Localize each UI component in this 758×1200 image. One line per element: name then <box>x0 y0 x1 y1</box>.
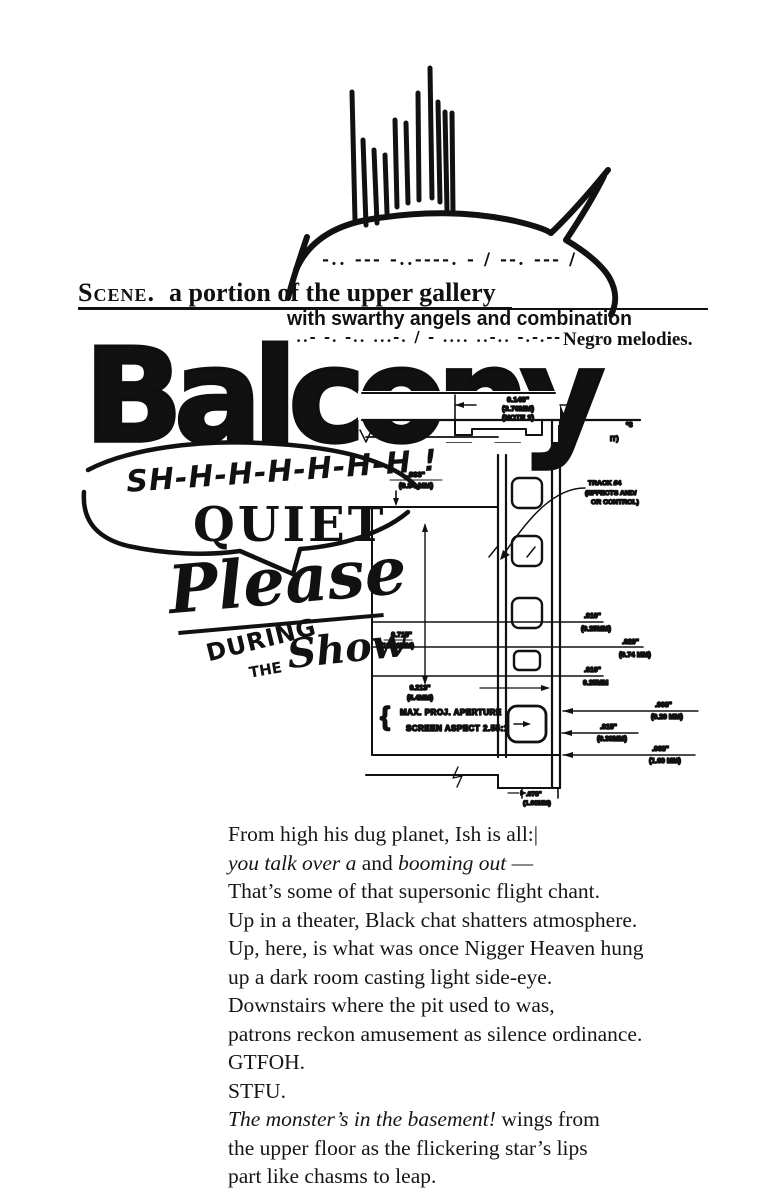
poem-text: Up in a theater, Black chat shatters atm… <box>228 908 637 932</box>
poem-block: From high his dug planet, Ish is all:| y… <box>228 820 708 1191</box>
dim-height-in: 0.715" <box>391 632 412 639</box>
poem-line: Up in a theater, Black chat shatters atm… <box>228 906 708 935</box>
poem-line: STFU. <box>228 1077 708 1106</box>
dim6-mm: (1.60 MM) <box>649 758 681 765</box>
track-label-2: (EFFECTS AND/ <box>585 490 637 497</box>
frame-dimension: 0.213" (5.4MM) <box>407 685 550 702</box>
poem-text: up a dark room casting light side-eye. <box>228 965 552 989</box>
dim2-in: .029" <box>622 639 639 646</box>
dim-bottom-mm: (1.98MM) <box>523 800 551 807</box>
poem-line: GTFOH. <box>228 1048 708 1077</box>
poem-text: The monster’s in the basement! <box>228 1107 496 1131</box>
poem-text: That’s some of that supersonic flight ch… <box>228 879 600 903</box>
right-dimensions: .010" (0.25MM) .029" (0.74 MM) .010" 0.2… <box>562 613 698 765</box>
dim-edge-mm: (0.84 MM) <box>399 481 434 490</box>
dim3-mm: 0.25MM <box>583 680 608 687</box>
aperture-label-1: MAX. PROJ. APERTURE <box>400 708 502 717</box>
dim5-mm: (0.38MM) <box>597 736 627 743</box>
track-label-3: OR CONTROL) <box>591 499 639 506</box>
dim6-in: .063" <box>652 746 669 753</box>
aperture-box <box>372 507 560 755</box>
edge-dimension: .033" (0.84 MM) <box>390 470 442 506</box>
poem-line: you talk over a and booming out — <box>228 849 708 878</box>
poem-line: That’s some of that supersonic flight ch… <box>228 877 708 906</box>
dim-frame-mm: (5.4MM) <box>407 695 433 702</box>
poem-line: The monster’s in the basement! wings fro… <box>228 1105 708 1134</box>
poem-text: From high his dug planet, Ish is all:| <box>228 822 538 846</box>
height-dimension: 0.715" (18.16MM) <box>380 523 428 685</box>
dim-frame-in: 0.213" <box>410 685 431 692</box>
poem-text: Downstairs where the pit used to was, <box>228 993 555 1017</box>
dim1-in: .010" <box>584 613 601 620</box>
poem-text: the upper floor as the flickering star’s… <box>228 1136 588 1160</box>
break-symbol-top <box>360 429 377 442</box>
dim-bottom-in: .078" <box>526 791 542 798</box>
poem-text: STFU. <box>228 1079 286 1103</box>
poem-text: GTFOH. <box>228 1050 305 1074</box>
dim5-in: .015" <box>600 724 617 731</box>
poem-line: patrons reckon amusement as silence ordi… <box>228 1020 708 1049</box>
label-fragment-right: IT) <box>610 436 619 443</box>
label-fragment-star: *3 <box>626 422 633 429</box>
film-schematic: 0.148" (3.76MM) (NOTE 2) (1. *3 IT) <box>350 385 758 815</box>
label-fragment-left: (1. <box>570 407 578 414</box>
dim4-mm: (0.20 MM) <box>651 714 683 721</box>
poem-line: From high his dug planet, Ish is all:| <box>228 820 708 849</box>
poem-line: the upper floor as the flickering star’s… <box>228 1134 708 1163</box>
dim-top-mm: (3.76MM) <box>502 404 535 413</box>
dim3-in: .010" <box>584 667 601 674</box>
dim-top-note: (NOTE 2) <box>502 413 535 422</box>
poem-line: up a dark room casting light side-eye. <box>228 963 708 992</box>
aperture-label-2: SCREEN ASPECT 2.55:1 <box>406 724 509 733</box>
poem-text: you talk over a <box>228 851 356 875</box>
poem-text: patrons reckon amusement as silence ordi… <box>228 1022 642 1046</box>
dim1-mm: (0.25MM) <box>581 626 611 633</box>
hair-spikes <box>352 68 453 225</box>
bottom-edge: .078" (1.98MM) <box>366 767 560 807</box>
dim4-in: .008" <box>655 702 672 709</box>
poem-text: part like chasms to leap. <box>228 1164 436 1188</box>
poem-text: Up, here, is what was once Nigger Heaven… <box>228 936 644 960</box>
poem-text: — <box>506 851 533 875</box>
dim-edge-in: .033" <box>407 470 426 479</box>
aperture-callout: { MAX. PROJ. APERTURE SCREEN ASPECT 2.55… <box>380 701 509 733</box>
track-label-1: TRACK #4 <box>588 480 621 487</box>
poem-line: part like chasms to leap. <box>228 1162 708 1191</box>
poem-line: Downstairs where the pit used to was, <box>228 991 708 1020</box>
track-callout: TRACK #4 (EFFECTS AND/ OR CONTROL) <box>500 480 639 560</box>
poem-text: booming out <box>398 851 506 875</box>
poem-line: Up, here, is what was once Nigger Heaven… <box>228 934 708 963</box>
dim-top-in: 0.148" <box>507 395 530 404</box>
poem-text: and <box>356 851 398 875</box>
poetry-page: -.. --- -..----. - / --. --- / Scene.a p… <box>0 0 758 1200</box>
dim2-mm: (0.74 MM) <box>619 652 651 659</box>
aperture-brace: { <box>380 701 390 731</box>
poem-text: wings from <box>496 1107 600 1131</box>
